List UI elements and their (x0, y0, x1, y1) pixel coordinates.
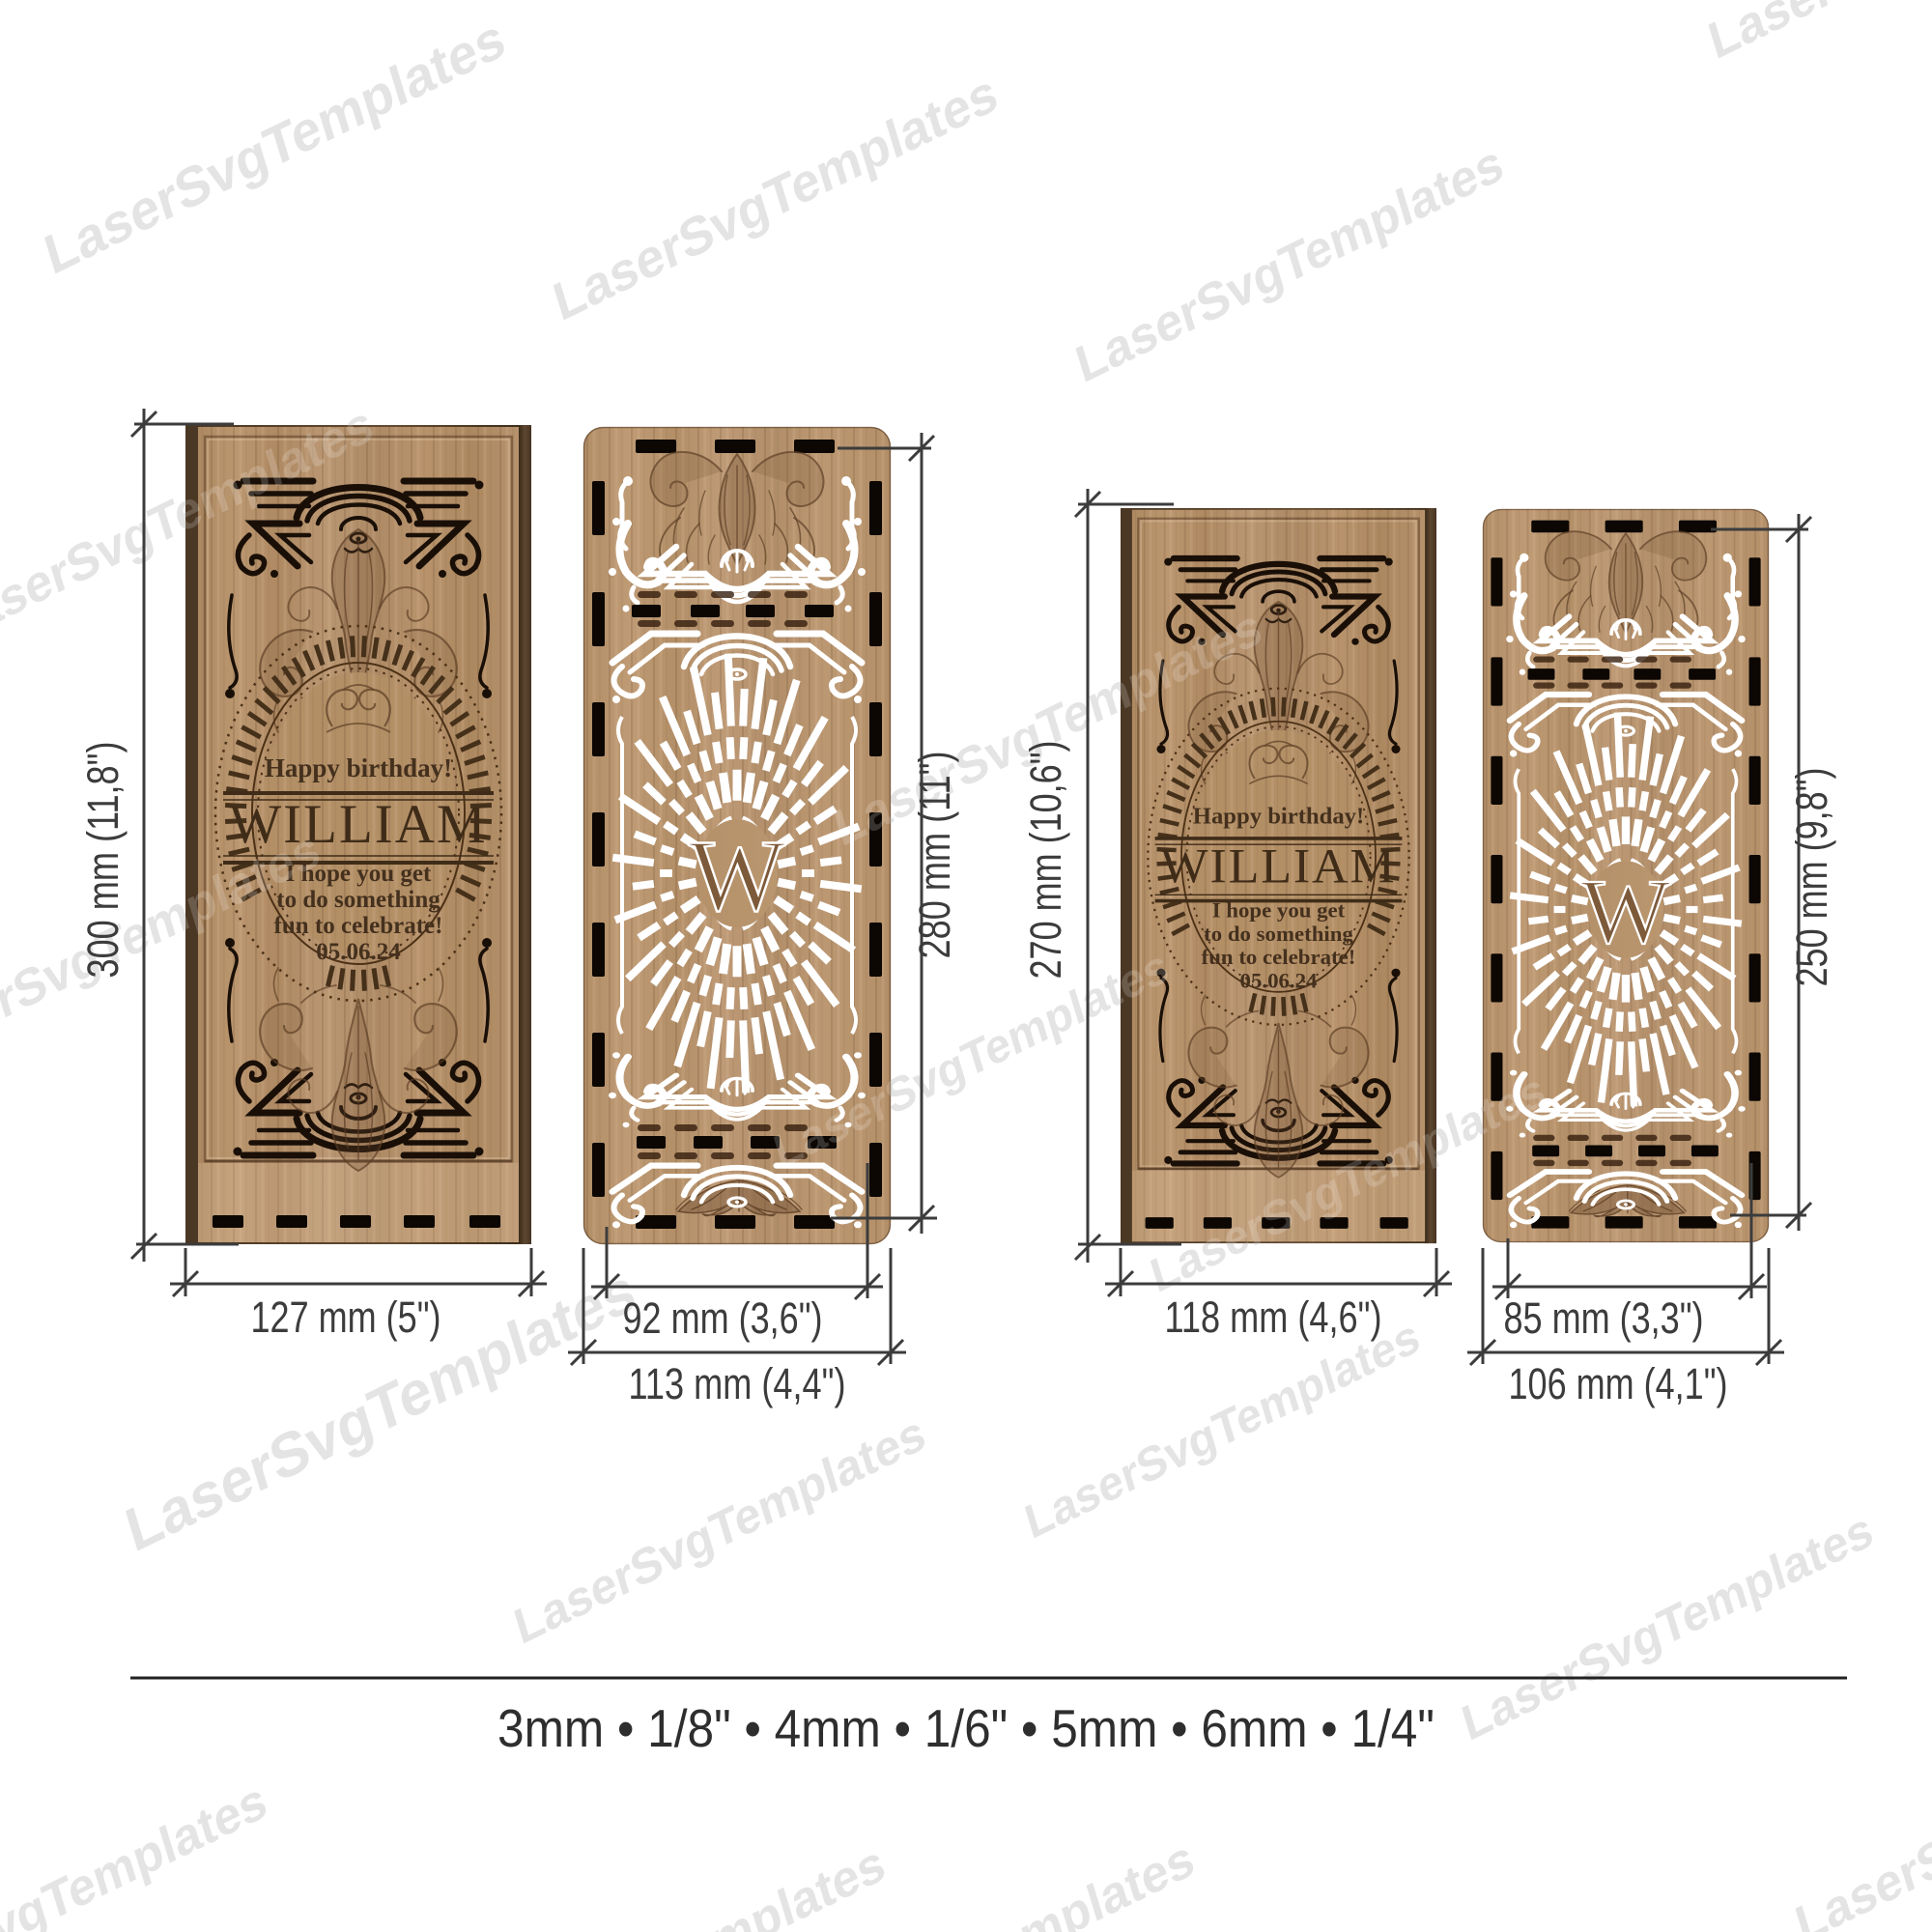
svg-text:113 mm (4,4"): 113 mm (4,4") (629, 1359, 846, 1408)
svg-text:127 mm (5"): 127 mm (5") (251, 1293, 441, 1342)
svg-text:I hope you get: I hope you get (1212, 898, 1346, 923)
svg-text:to do something: to do something (1204, 922, 1353, 946)
svg-text:280 mm (11"): 280 mm (11") (910, 752, 959, 959)
svg-text:85 mm (3,3"): 85 mm (3,3") (1504, 1293, 1704, 1343)
svg-text:118 mm (4,6"): 118 mm (4,6") (1165, 1293, 1382, 1342)
svg-text:300 mm (11,8"): 300 mm (11,8") (78, 742, 128, 979)
svg-text:05.06.24: 05.06.24 (1240, 968, 1318, 992)
svg-text:250 mm (9,8"): 250 mm (9,8") (1787, 768, 1836, 987)
svg-text:Happy birthday!: Happy birthday! (1193, 804, 1364, 830)
svg-text:W: W (1580, 861, 1671, 962)
svg-text:W: W (689, 819, 785, 932)
svg-text:106 mm (4,1"): 106 mm (4,1") (1509, 1359, 1728, 1408)
svg-text:92 mm (3,6"): 92 mm (3,6") (623, 1293, 823, 1343)
svg-text:to do something: to do something (276, 887, 440, 913)
svg-text:fun to celebrate!: fun to celebrate! (274, 913, 443, 939)
svg-text:270 mm (10,6"): 270 mm (10,6") (1021, 741, 1070, 980)
svg-text:05.06.24: 05.06.24 (316, 939, 401, 965)
svg-text:Happy birthday!: Happy birthday! (265, 753, 452, 782)
svg-text:fun to celebrate!: fun to celebrate! (1202, 945, 1356, 969)
svg-text:WILLIAM: WILLIAM (1160, 839, 1396, 894)
svg-text:3mm • 1/8" • 4mm • 1/6" • 5mm: 3mm • 1/8" • 4mm • 1/6" • 5mm • 6mm • 1/… (497, 1698, 1435, 1758)
